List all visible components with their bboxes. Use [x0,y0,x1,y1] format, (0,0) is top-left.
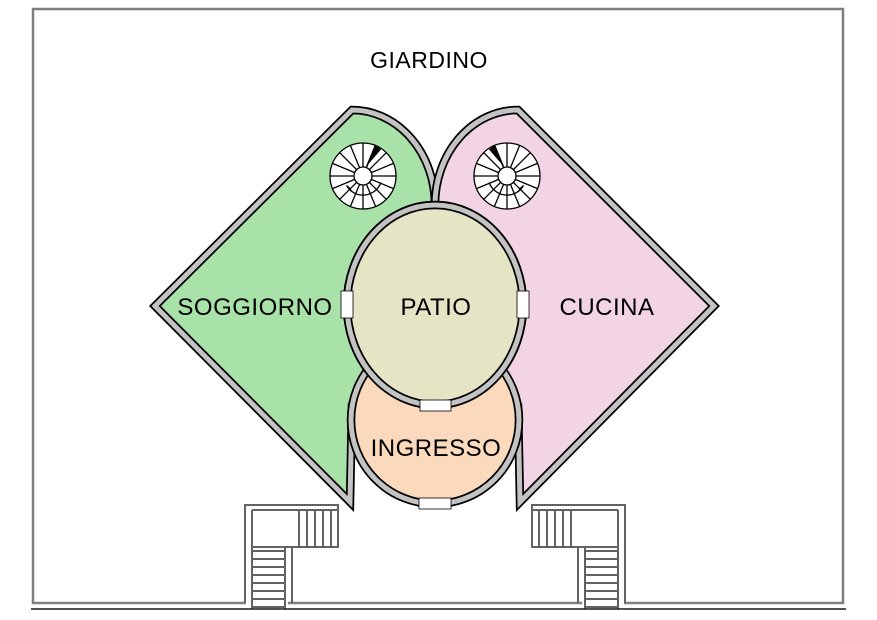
label-patio: PATIO [401,294,472,321]
floor-plan-page: GIARDINO SOGGIORNO PATIO CUCINA INGRESSO [0,0,877,620]
spiral-staircase-right [474,143,540,209]
label-ingresso: INGRESSO [371,435,502,462]
door-ingresso-entrance [419,498,451,509]
floor-plan-drawing: GIARDINO SOGGIORNO PATIO CUCINA INGRESSO [0,0,877,620]
spiral-staircase-left [330,143,396,209]
door-patio-cucina [517,291,529,318]
label-cucina: CUCINA [559,294,654,321]
door-patio-soggiorno [341,291,353,318]
door-patio-ingresso [420,400,451,411]
label-soggiorno: SOGGIORNO [177,294,332,321]
label-giardino: GIARDINO [370,47,488,73]
